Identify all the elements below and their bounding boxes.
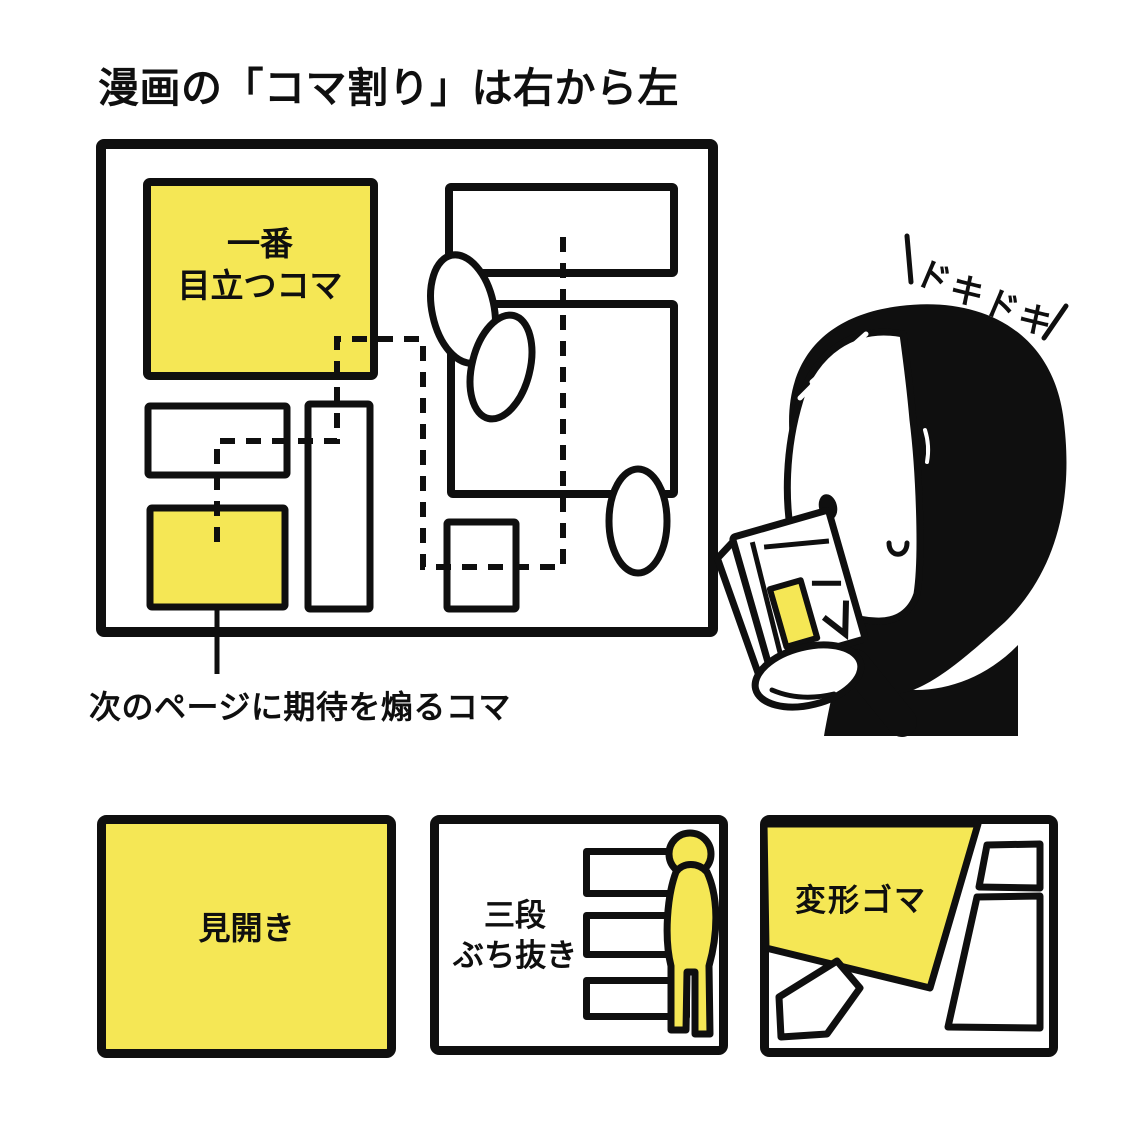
legend-three-row-label-line1: 三段: [430, 896, 600, 936]
sfx-slash-left: [907, 236, 911, 282]
panel-small-left: [148, 406, 287, 475]
panel-small-square: [447, 522, 516, 609]
legend-three-row-label: 三段 ぶち抜き: [430, 896, 600, 976]
panel-tall-narrow: [308, 404, 370, 609]
most-striking-panel-label-line1: 一番: [227, 223, 293, 265]
cliffhanger-caption: 次のページに期待を煽るコマ: [89, 682, 511, 728]
most-striking-panel-label: 一番 目立つコマ: [143, 178, 377, 378]
panel-cliffhanger: [150, 508, 285, 607]
figure-body: [667, 865, 716, 1035]
legend-spread-label: 見開き: [97, 815, 396, 1058]
panel-top-right: [449, 187, 674, 273]
speech-bubble-bottom: [609, 469, 667, 573]
legend-panel-irregular: [764, 820, 1054, 1053]
irregular-trapezoid-small: [979, 844, 1040, 888]
legend-three-row-label-line2: ぶち抜き: [430, 936, 600, 976]
legend-spread-label-text: 見開き: [198, 903, 294, 949]
legend-irregular-label-text: 変形ゴマ: [795, 883, 927, 918]
page-title: 漫画の「コマ割り」は右から左: [98, 54, 679, 114]
most-striking-panel-label-line2: 目立つコマ: [178, 265, 343, 307]
illustration-canvas: 漫画の「コマ割り」は右から左 一番 目立つコマ 次のページに期待を煽るコマ ドキ…: [0, 0, 1128, 1128]
legend-irregular-label: 変形ゴマ: [795, 875, 927, 920]
